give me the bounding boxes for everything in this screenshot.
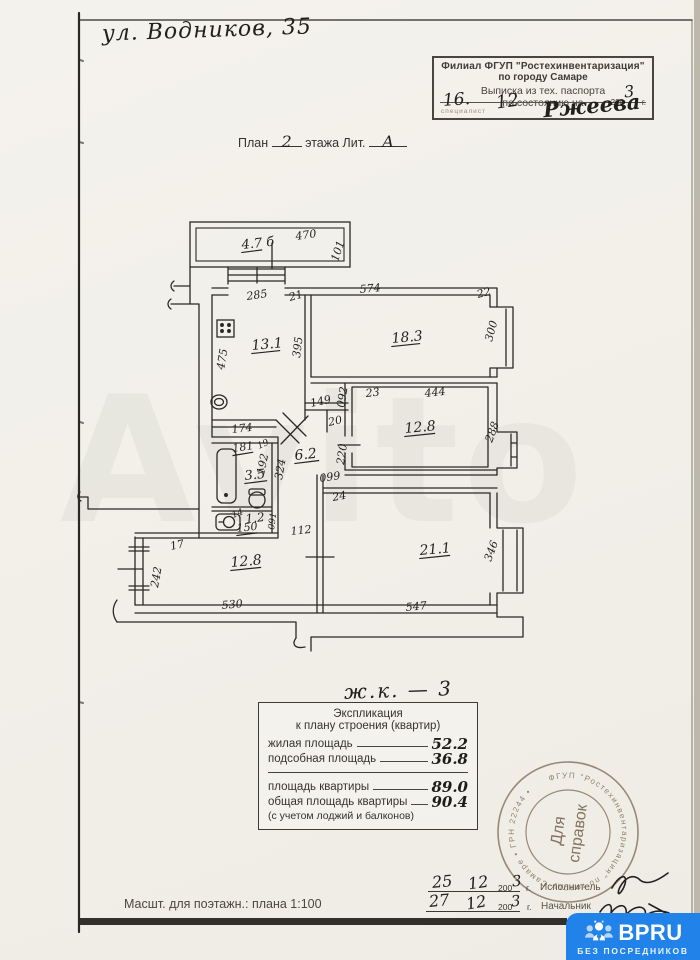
svg-text:19: 19 [256,438,271,452]
svg-text:174: 174 [231,421,253,436]
bpru-watermark-badge: BPRU БЕЗ ПОСРЕДНИКОВ [566,913,700,960]
svg-text:395: 395 [290,336,305,358]
plan-dimension-label: 099 [319,469,342,485]
svg-text:547: 547 [405,599,427,614]
svg-text:149: 149 [309,393,332,410]
svg-text:288: 288 [482,420,502,445]
plan-title-prefix: План [238,136,268,150]
signoff2-year-unit: г. [527,902,531,912]
bathtub-icon [217,449,236,503]
svg-text:346: 346 [482,539,501,563]
svg-text:574: 574 [359,281,381,296]
plan-dimension-label: 470 [294,227,318,243]
explication-label: подсобная площадь [268,753,376,765]
plan-dimension-label: 092 [334,386,350,409]
plan-dimension-label: 220 [334,443,350,467]
leader-line [380,761,428,762]
svg-text:220: 220 [334,443,350,467]
plan-title-letter-slot: А [369,132,407,147]
plan-dimension-label: 288 [482,420,502,445]
stamp-year-unit: г. [642,98,646,107]
sink-icon [211,395,227,409]
plan-dimension-label: 547 [405,599,427,614]
stamp-center-line1: Для [548,815,569,846]
room-area-label: 3.5 [243,467,267,484]
svg-text:14: 14 [231,507,245,520]
explication-row: жилая площадь 52.2 [268,735,468,750]
explication-title1: Экспликация [268,708,468,720]
svg-text:21: 21 [286,288,304,304]
scale-note: Масшт. для поэтажн.: плана 1:100 [124,897,322,911]
svg-text:470: 470 [294,227,318,243]
plan-title: План 2 этажа Лит. А [238,132,407,150]
plan-dimension-label: 23 [364,386,380,400]
stamp-center-line2: справок [566,802,591,863]
svg-text:475: 475 [214,348,231,372]
svg-text:324: 324 [272,458,288,481]
plan-dimension-label: 300 [482,319,500,343]
room-area-label: 12.8 [403,418,437,437]
bay-windows [323,307,523,617]
explication-label: площадь квартиры [268,781,369,793]
plan-dimension-label: 19 [256,438,271,452]
svg-text:23: 23 [364,386,380,400]
plan-dimension-label: 149 [309,393,332,410]
scan-edge-shadow [694,0,700,960]
stove-icon [217,320,234,337]
explication-label: жилая площадь [268,738,353,750]
plan-dimension-label: 574 [359,281,381,296]
explication-row: площадь квартиры 89.0 [268,778,468,793]
leader-line [373,789,428,790]
plan-title-letter: А [382,132,394,151]
office-stamp-box: Филиал ФГУП "Ростехинвентаризация" по го… [432,56,654,120]
scanned-page: Avito [0,0,700,960]
plan-dimension-label: 324 [272,458,288,481]
people-lock-icon [583,920,615,946]
plan-dimension-label: 242 [148,566,165,590]
plan-title-floor-slot: 2 [272,132,302,147]
leader-line [357,746,429,747]
signoff1-year-hand: 3 [511,872,522,891]
explication-table: Экспликация к плану строения (квартир) ж… [258,702,478,830]
plan-dimension-label: 112 [290,523,312,538]
badge-subtitle: БЕЗ ПОСРЕДНИКОВ [577,946,688,956]
apartment-mark: ж.к. — 3 [344,676,454,704]
plan-dimension-label: 21 [286,288,304,304]
svg-text:530: 530 [221,597,243,612]
stamp-clerk-label: специалист [441,108,486,115]
explication-row: подсобная площадь 36.8 [268,750,468,765]
plan-title-floor: 2 [282,132,292,151]
room-area-label: 21.1 [418,540,451,559]
room-area-label: 12.8 [229,552,263,571]
svg-text:099: 099 [319,469,342,485]
window [228,267,285,284]
signoff1-year-unit: г. [526,883,530,893]
svg-text:20: 20 [326,413,343,429]
plan-dimension-label: 395 [290,336,305,358]
signoff2-year-printed: 200 [498,902,512,912]
plan-title-middle: этажа Лит. [305,136,365,150]
plan-dimension-label: 181 [231,439,255,455]
plan-dimension-label: 174 [231,421,253,436]
plan-dimension-label: 475 [214,348,231,372]
svg-text:112: 112 [290,523,312,538]
plan-dimension-label: 530 [221,597,243,612]
svg-text:242: 242 [148,566,165,590]
toilet-icon [249,489,265,508]
svg-text:092: 092 [334,386,350,409]
badge-title: BPRU [618,920,682,946]
svg-text:17: 17 [169,537,185,553]
explication-value: 36.8 [431,750,468,768]
plan-dimension-label: 14 [231,507,245,520]
explication-label: общая площадь квартиры [268,796,407,808]
stamp-org-line1: Филиал ФГУП "Ростехинвентаризация" [434,61,652,72]
plan-dimension-label: 346 [482,539,501,563]
room-area-label: 18.3 [390,328,424,347]
plan-dimension-label: 150 [235,520,258,536]
walls-bottom [78,492,523,651]
plan-dimension-label: 20 [326,413,343,429]
room-area-label: 4.7 б [240,235,275,253]
signoff2-day: 27 [428,890,450,911]
plan-dimension-label: 17 [169,537,185,553]
stamp-org-line2: по городу Самаре [434,72,652,83]
badge-row: BPRU [583,920,682,946]
svg-text:300: 300 [482,319,500,343]
explication-separator [268,772,468,773]
svg-text:24: 24 [330,489,347,504]
signoff2-role: Начальник [541,901,591,912]
signoff1-day: 25 [431,871,453,892]
signoff2-year-hand: 3 [510,892,521,911]
explication-title2: к плану строения (квартир) [268,720,468,732]
plan-dimension-label: 24 [330,489,347,504]
explication-note: (с учетом лоджий и балконов) [268,810,468,822]
svg-text:285: 285 [245,287,269,303]
leader-line [411,804,428,805]
walls-left-exterior [168,267,212,509]
explication-row: общая площадь квартиры 90.4 [268,793,468,808]
plan-dimension-label: 444 [423,385,446,400]
plan-labels: 4701014.7 б285215742247539513.118.330023… [148,227,502,614]
walls-hall-partition [306,475,334,605]
room-area-label: 6.2 [293,446,320,465]
stamp-month: 12 [495,90,521,114]
room-area-label: 13.1 [250,335,283,354]
svg-text:444: 444 [423,385,446,400]
plan-dimension-label: 285 [245,287,269,303]
explication-value: 90.4 [431,793,468,811]
signoff1-role: Исполнитель [540,882,601,893]
